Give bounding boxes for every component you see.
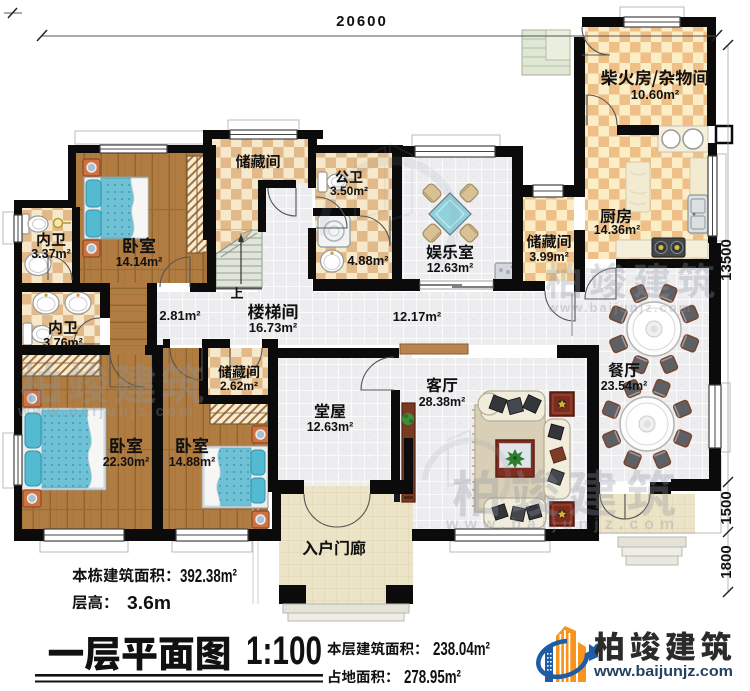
svg-text:3.37m²: 3.37m² [31,247,71,261]
svg-text:12.63m²: 12.63m² [307,420,354,434]
svg-text:12.17m²: 12.17m² [393,309,442,324]
svg-text:4.88m²: 4.88m² [347,253,389,268]
svg-text:10.60m²: 10.60m² [631,87,680,102]
svg-text:1500: 1500 [718,491,735,524]
svg-text:3.6m: 3.6m [127,592,171,613]
svg-text:20600: 20600 [336,13,388,30]
svg-text:www.baijunjz.com: www.baijunjz.com [547,300,692,315]
svg-text:238.04m²: 238.04m² [433,638,490,659]
svg-text:2.62m²: 2.62m² [220,379,258,393]
svg-text:1800: 1800 [718,545,735,578]
svg-text:16.73m²: 16.73m² [249,320,298,335]
svg-text:13500: 13500 [718,239,735,281]
svg-text:14.36m²: 14.36m² [594,223,641,237]
svg-text:14.14m²: 14.14m² [116,255,163,269]
svg-text:14.88m²: 14.88m² [169,455,216,469]
svg-text:278.95m²: 278.95m² [404,666,461,687]
svg-text:3.99m²: 3.99m² [529,250,569,264]
svg-text:28.38m²: 28.38m² [419,395,466,409]
svg-text:3.76m²: 3.76m² [43,336,83,350]
svg-text:www.baijunjz.com: www.baijunjz.com [593,663,733,680]
svg-text:3.50m²: 3.50m² [330,184,368,198]
svg-text:12.63m²: 12.63m² [427,261,474,275]
svg-text:22.30m²: 22.30m² [103,455,150,469]
svg-text:www.baijunjz.com: www.baijunjz.com [445,516,680,533]
svg-text:www.baijunjz.com: www.baijunjz.com [17,403,195,420]
svg-text:23.54m²: 23.54m² [601,379,648,393]
svg-text:392.38m²: 392.38m² [180,565,237,586]
svg-text:1:100: 1:100 [246,629,322,673]
svg-text:2.81m²: 2.81m² [159,308,201,323]
